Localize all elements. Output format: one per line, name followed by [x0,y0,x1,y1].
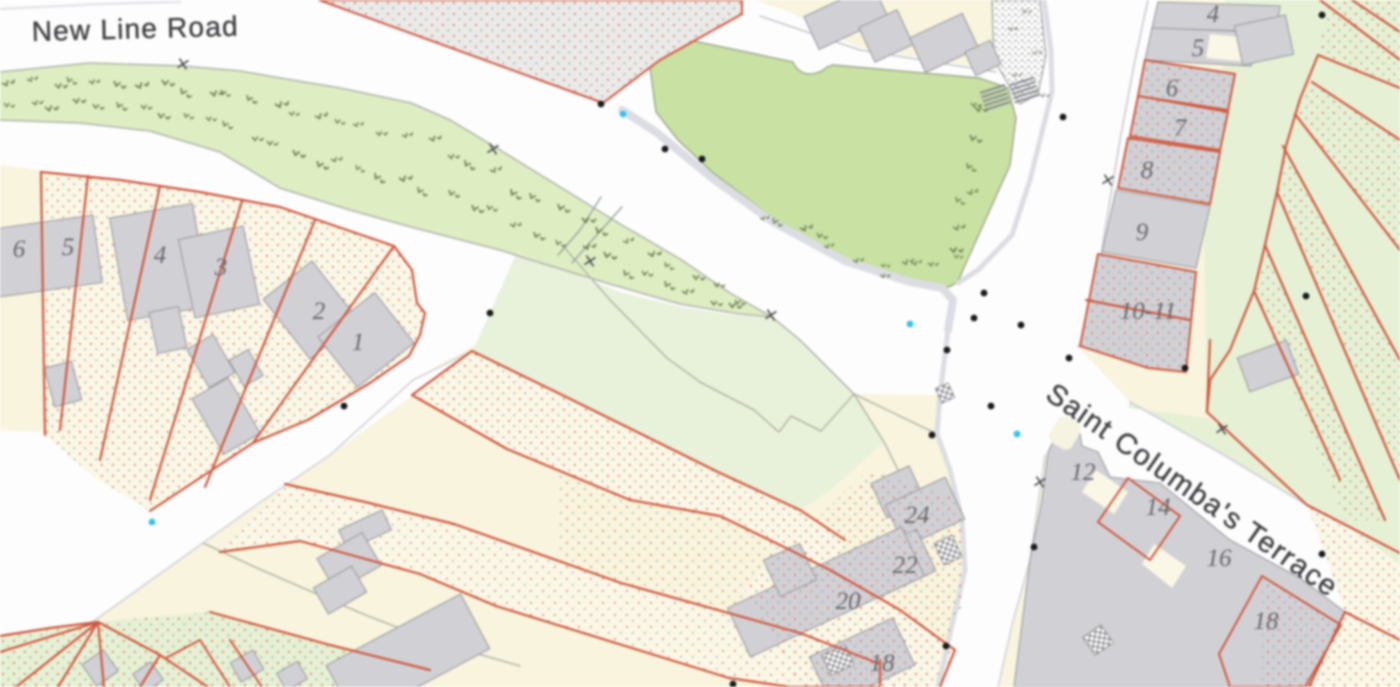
svg-text:7: 7 [1174,115,1188,142]
svg-text:10-11: 10-11 [1120,298,1176,325]
svg-text:2: 2 [313,298,326,325]
svg-text:New Line Road: New Line Road [31,11,239,47]
svg-text:6: 6 [1166,75,1179,102]
svg-text:14: 14 [1146,494,1171,521]
svg-text:8: 8 [1141,157,1154,184]
svg-text:1: 1 [352,329,365,356]
svg-text:6: 6 [13,236,26,263]
svg-text:18: 18 [870,650,896,677]
svg-text:4: 4 [1207,1,1220,28]
svg-text:12: 12 [1071,459,1096,486]
svg-text:24: 24 [905,502,930,529]
svg-text:5: 5 [1192,35,1205,62]
svg-text:16: 16 [1207,545,1233,572]
svg-text:9: 9 [1136,219,1149,246]
svg-text:5: 5 [62,234,75,261]
svg-text:22: 22 [893,552,918,579]
svg-text:4: 4 [154,242,167,269]
svg-text:3: 3 [214,254,228,281]
svg-text:20: 20 [836,588,862,615]
svg-text:18: 18 [1254,608,1280,635]
